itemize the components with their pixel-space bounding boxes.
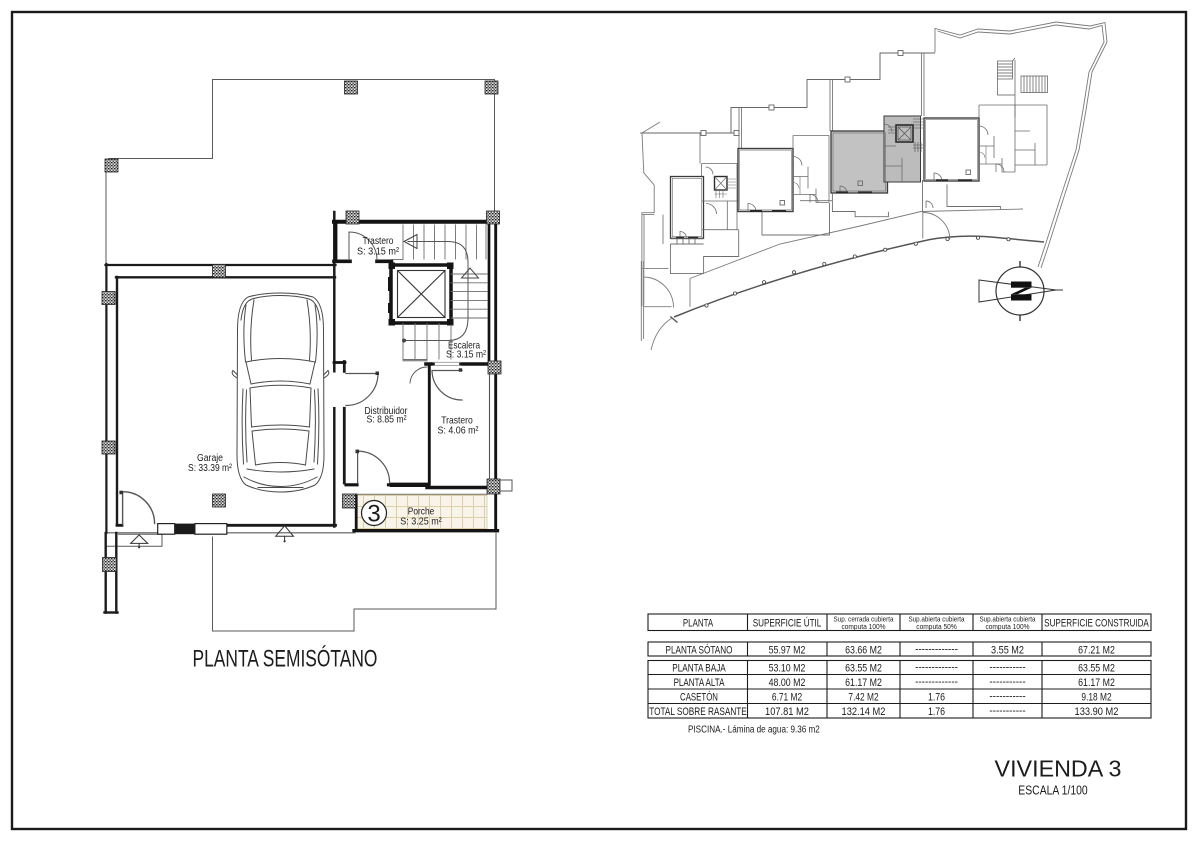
- svg-text:S: 3.15 m²: S: 3.15 m²: [446, 349, 486, 361]
- svg-text:63.55 M2: 63.55 M2: [845, 663, 882, 675]
- svg-text:computa 100%: computa 100%: [841, 624, 885, 631]
- svg-text:CASETÓN: CASETÓN: [680, 691, 718, 704]
- svg-text:Sup.abierta cubierta: Sup.abierta cubierta: [979, 616, 1035, 623]
- svg-text:3: 3: [367, 501, 380, 528]
- svg-text:PLANTA BAJA: PLANTA BAJA: [672, 662, 726, 674]
- svg-text:S: 3.25 m²: S: 3.25 m²: [400, 516, 442, 528]
- svg-text:PISCINA.- Lámina de agua: 9.36: PISCINA.- Lámina de agua: 9.36 m2: [688, 722, 820, 734]
- svg-text:VIVIENDA 3: VIVIENDA 3: [995, 756, 1122, 782]
- svg-text:48.00 M2: 48.00 M2: [769, 677, 806, 689]
- svg-text:S: 3.15 m²: S: 3.15 m²: [357, 246, 400, 258]
- svg-text:61.17 M2: 61.17 M2: [845, 677, 882, 689]
- svg-text:computa 50%: computa 50%: [916, 624, 956, 631]
- svg-text:3.55 M2: 3.55 M2: [991, 645, 1024, 657]
- svg-text:-----------: -----------: [989, 706, 1026, 718]
- svg-text:PLANTA ALTA: PLANTA ALTA: [674, 677, 725, 690]
- svg-text:-------------: -------------: [915, 662, 958, 674]
- svg-text:61.17 M2: 61.17 M2: [1078, 677, 1115, 689]
- svg-text:-----------: -----------: [989, 677, 1026, 689]
- svg-text:SUPERFICIE CONSTRUIDA: SUPERFICIE CONSTRUIDA: [1044, 617, 1149, 630]
- svg-text:S: 8.85 m²: S: 8.85 m²: [366, 414, 406, 426]
- svg-text:SUPERFICIE ÚTIL: SUPERFICIE ÚTIL: [753, 617, 822, 630]
- svg-text:9.18 M2: 9.18 M2: [1081, 691, 1111, 703]
- svg-text:S: 4.06 m²: S: 4.06 m²: [438, 425, 479, 437]
- svg-text:Sup. cerrada cubierta: Sup. cerrada cubierta: [834, 616, 894, 623]
- svg-text:107.81 M2: 107.81 M2: [765, 706, 809, 718]
- svg-text:6.71 M2: 6.71 M2: [772, 691, 802, 703]
- svg-text:S: 33.39 m²: S: 33.39 m²: [188, 461, 232, 473]
- svg-text:63.55 M2: 63.55 M2: [1078, 663, 1115, 675]
- svg-text:PLANTA SÓTANO: PLANTA SÓTANO: [665, 644, 732, 656]
- svg-text:-------------: -------------: [915, 644, 958, 656]
- svg-text:53.10 M2: 53.10 M2: [769, 663, 806, 675]
- svg-text:PLANTA SEMISÓTANO: PLANTA SEMISÓTANO: [193, 646, 378, 672]
- svg-text:Trastero: Trastero: [363, 235, 394, 246]
- svg-text:1.76: 1.76: [928, 692, 946, 704]
- svg-text:Trastero: Trastero: [441, 414, 472, 426]
- svg-text:computa 100%: computa 100%: [985, 624, 1029, 631]
- svg-text:-----------: -----------: [989, 662, 1026, 674]
- svg-text:67.21 M2: 67.21 M2: [1078, 645, 1115, 657]
- svg-text:132.14 M2: 132.14 M2: [842, 706, 886, 718]
- svg-text:7.42 M2: 7.42 M2: [848, 691, 878, 703]
- svg-text:ESCALA 1/100: ESCALA 1/100: [1018, 785, 1087, 798]
- svg-text:-------------: -------------: [915, 677, 958, 689]
- svg-text:Sup.abierta cubierta: Sup.abierta cubierta: [908, 616, 964, 623]
- svg-text:TOTAL SOBRE RASANTE: TOTAL SOBRE RASANTE: [649, 706, 747, 718]
- svg-text:PLANTA: PLANTA: [683, 617, 714, 630]
- svg-text:-----------: -----------: [989, 691, 1026, 703]
- svg-text:133.90 M2: 133.90 M2: [1075, 706, 1119, 718]
- svg-text:63.66 M2: 63.66 M2: [845, 645, 882, 657]
- svg-text:1.76: 1.76: [928, 706, 946, 718]
- svg-text:55.97 M2: 55.97 M2: [769, 645, 806, 657]
